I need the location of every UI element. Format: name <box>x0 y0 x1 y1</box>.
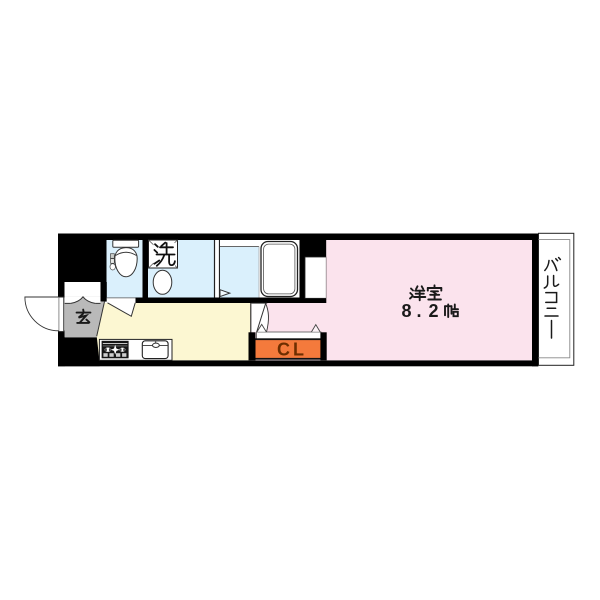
svg-text:2: 2 <box>429 301 439 321</box>
svg-text:8: 8 <box>402 301 412 321</box>
svg-text:CL: CL <box>277 339 307 359</box>
svg-text:.: . <box>417 301 422 321</box>
